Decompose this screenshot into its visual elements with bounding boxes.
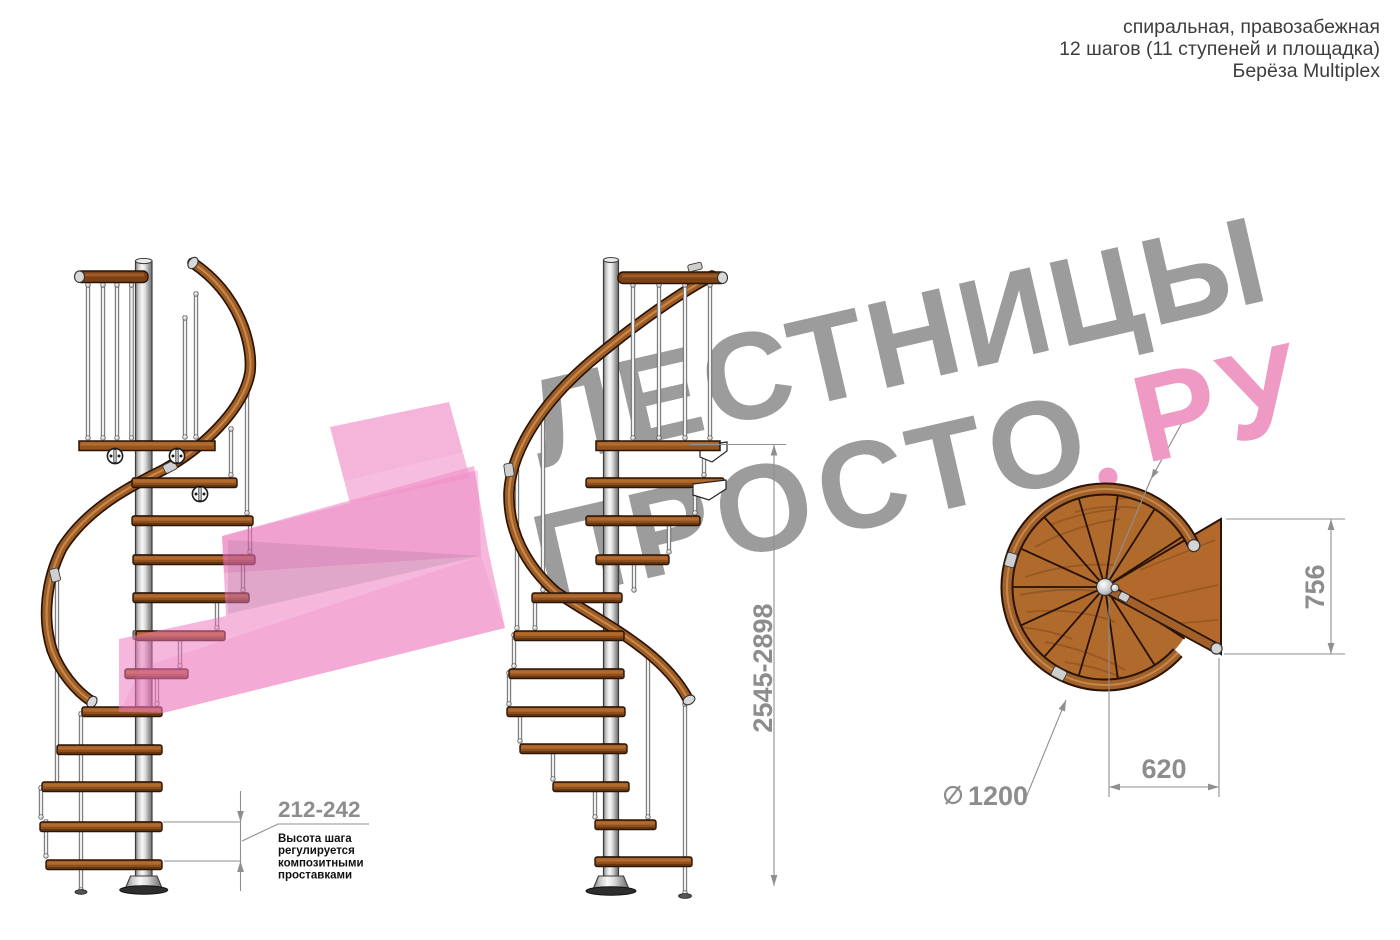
svg-text:756: 756 bbox=[1300, 564, 1330, 609]
svg-text:Берёза Multiplex: Берёза Multiplex bbox=[1233, 60, 1381, 82]
svg-text:1200: 1200 bbox=[968, 781, 1028, 811]
svg-text:спиральная, правозабежная: спиральная, правозабежная bbox=[1123, 16, 1380, 38]
svg-text:212-242: 212-242 bbox=[278, 797, 361, 822]
svg-text:620: 620 bbox=[1141, 754, 1186, 784]
svg-text:2545-2898: 2545-2898 bbox=[748, 603, 778, 732]
svg-text:Высота шага регулируетсякомпоз: Высота шага регулируетсякомпозитнымипрос… bbox=[278, 833, 364, 882]
svg-text:12 шагов (11 ступеней и площад: 12 шагов (11 ступеней и площадка) bbox=[1059, 38, 1380, 60]
